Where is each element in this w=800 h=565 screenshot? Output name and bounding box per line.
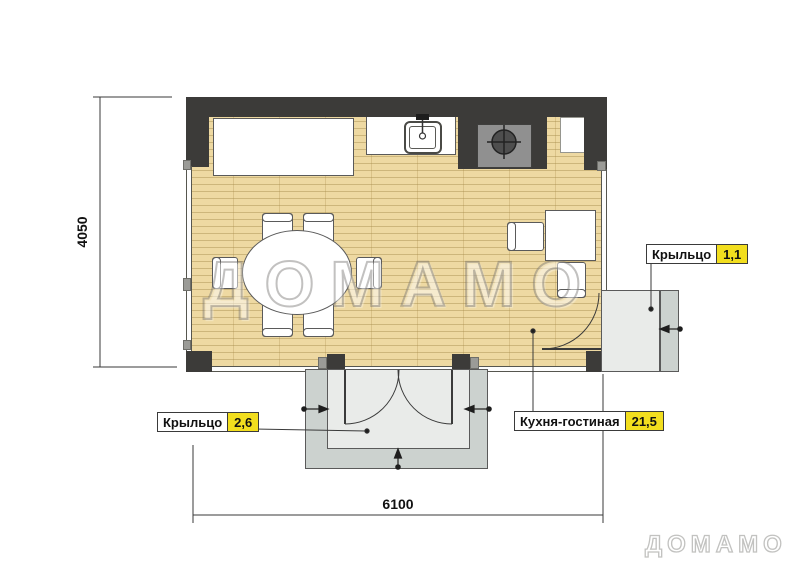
room-area-badge: 2,6: [228, 412, 259, 432]
entry-arrows-bottom-porch: [302, 406, 491, 470]
label-porch-bottom: Крыльцо2,6: [157, 412, 259, 432]
label-porch-right: Крыльцо1,1: [646, 244, 748, 264]
label-kitchen-living: Кухня-гостиная21,5: [514, 411, 664, 431]
entry-arrow-right-porch: [660, 326, 682, 333]
sink-faucet: [416, 114, 429, 139]
room-area-badge: 21,5: [626, 411, 664, 431]
door-right: [542, 293, 601, 349]
dimension-width-text: 6100: [193, 496, 603, 512]
floor-plan-page: ДОМАМО: [0, 0, 800, 565]
dimension-line-vertical: [93, 97, 177, 367]
room-name: Крыльцо: [646, 244, 717, 264]
room-name: Кухня-гостиная: [514, 411, 626, 431]
room-name: Крыльцо: [157, 412, 228, 432]
plan-linework: [0, 0, 800, 565]
door-bottom-double: [345, 370, 452, 424]
brand-logo: ДОМАМО: [645, 531, 787, 559]
dimension-height-text: 4050: [74, 207, 100, 257]
room-area-badge: 1,1: [717, 244, 748, 264]
stove-burner: [487, 125, 521, 159]
